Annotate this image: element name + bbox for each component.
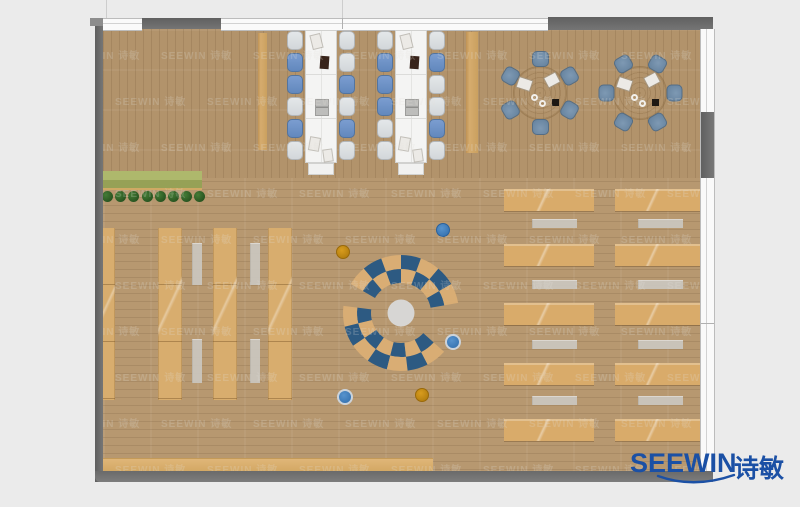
task-chair (339, 53, 355, 72)
round-table (614, 67, 666, 119)
plant (181, 191, 192, 202)
table-item-cup (531, 94, 538, 101)
wall-bottom (95, 471, 713, 482)
stool (337, 389, 353, 405)
plant (142, 191, 153, 202)
task-chair (287, 75, 303, 94)
task-chair (377, 75, 393, 94)
desk-bench (532, 280, 577, 289)
desk-bench (638, 340, 683, 349)
stool (415, 388, 429, 402)
long-table-end (308, 163, 334, 175)
table-item-cup (639, 100, 646, 107)
shelf-aisle-mat (192, 243, 202, 285)
bottom-cabinet (103, 458, 433, 471)
plant (194, 191, 205, 202)
desk-bench (532, 340, 577, 349)
curved-seating-circle (339, 251, 463, 375)
table-item-laptop (316, 100, 328, 115)
study-desk (615, 189, 700, 211)
shelf-aisle-mat (250, 243, 260, 285)
desk-bench (638, 219, 683, 228)
stool (436, 223, 450, 237)
study-desk (615, 363, 700, 385)
window-divider-right (701, 323, 714, 324)
study-desk (615, 303, 700, 325)
table-item-black (652, 99, 659, 106)
desk-bench (532, 396, 577, 405)
task-chair (287, 141, 303, 160)
study-desk (504, 189, 594, 211)
task-chair (377, 141, 393, 160)
study-desk (504, 303, 594, 325)
wall-top-segment-1 (142, 18, 221, 29)
logo-swoosh-icon (656, 473, 736, 487)
desk-bench (532, 219, 577, 228)
round-table (514, 67, 566, 119)
task-chair (377, 97, 393, 116)
desk-bench (638, 280, 683, 289)
task-chair (287, 119, 303, 138)
table-item-book (320, 56, 330, 70)
study-desk (615, 419, 700, 441)
wood-panel (258, 33, 267, 150)
wood-panel (466, 32, 478, 153)
dimension-line (342, 0, 343, 18)
task-chair (377, 53, 393, 72)
seewin-logo: SEEWIN 诗敏 (628, 446, 798, 488)
round-table-chair (532, 51, 549, 67)
table-item-cup (631, 94, 638, 101)
task-chair (287, 97, 303, 116)
task-chair (339, 119, 355, 138)
table-item-book (410, 56, 420, 70)
plant (128, 191, 139, 202)
study-desk (504, 244, 594, 266)
task-chair (429, 53, 445, 72)
table-item-black (552, 99, 559, 106)
task-chair (287, 53, 303, 72)
task-chair (339, 141, 355, 160)
study-desk (504, 363, 594, 385)
study-desk (504, 419, 594, 441)
room-floor: SEEWIN 诗敏SEEWIN 诗敏SEEWIN 诗敏SEEWIN 诗敏SEEW… (103, 29, 700, 471)
center-round-mat (388, 300, 415, 327)
table-item-paper (323, 149, 332, 161)
wall-corner-top-left (90, 18, 103, 26)
task-chair (287, 31, 303, 50)
furniture-layer (103, 29, 700, 471)
task-chair (429, 141, 445, 160)
long-table-end (398, 163, 424, 175)
window-wall-right (700, 29, 715, 471)
bookshelf-column (213, 228, 237, 400)
shelf-aisle-mat (250, 339, 260, 383)
table-item-cup (539, 100, 546, 107)
round-table-chair (598, 85, 614, 102)
wall-right-segment (701, 112, 714, 178)
task-chair (377, 31, 393, 50)
round-table-chair (532, 119, 549, 135)
task-chair (429, 119, 445, 138)
task-chair (339, 31, 355, 50)
floor-plan-canvas: SEEWIN 诗敏SEEWIN 诗敏SEEWIN 诗敏SEEWIN 诗敏SEEW… (0, 0, 800, 507)
round-table-chair (666, 85, 682, 102)
study-desk (615, 244, 700, 266)
task-chair (429, 75, 445, 94)
shelf-aisle-mat (192, 339, 202, 383)
curved-bench-segment (387, 356, 408, 371)
bookshelf-column (103, 228, 115, 400)
dimension-line (106, 0, 107, 18)
task-chair (429, 97, 445, 116)
curved-bench-segment (343, 306, 358, 327)
window-divider (342, 18, 343, 29)
task-chair (339, 75, 355, 94)
plant (115, 191, 126, 202)
lounge-bench (103, 171, 202, 190)
plant (168, 191, 179, 202)
table-item-laptop (406, 100, 418, 115)
bookshelf-column (158, 228, 182, 400)
plant (155, 191, 166, 202)
bookshelf-column (268, 228, 292, 400)
logo-text-cn: 诗敏 (734, 449, 784, 485)
plant (103, 191, 113, 202)
task-chair (377, 119, 393, 138)
desk-bench (638, 396, 683, 405)
wall-left (95, 22, 103, 482)
task-chair (429, 31, 445, 50)
table-item-paper (413, 149, 422, 161)
task-chair (339, 97, 355, 116)
